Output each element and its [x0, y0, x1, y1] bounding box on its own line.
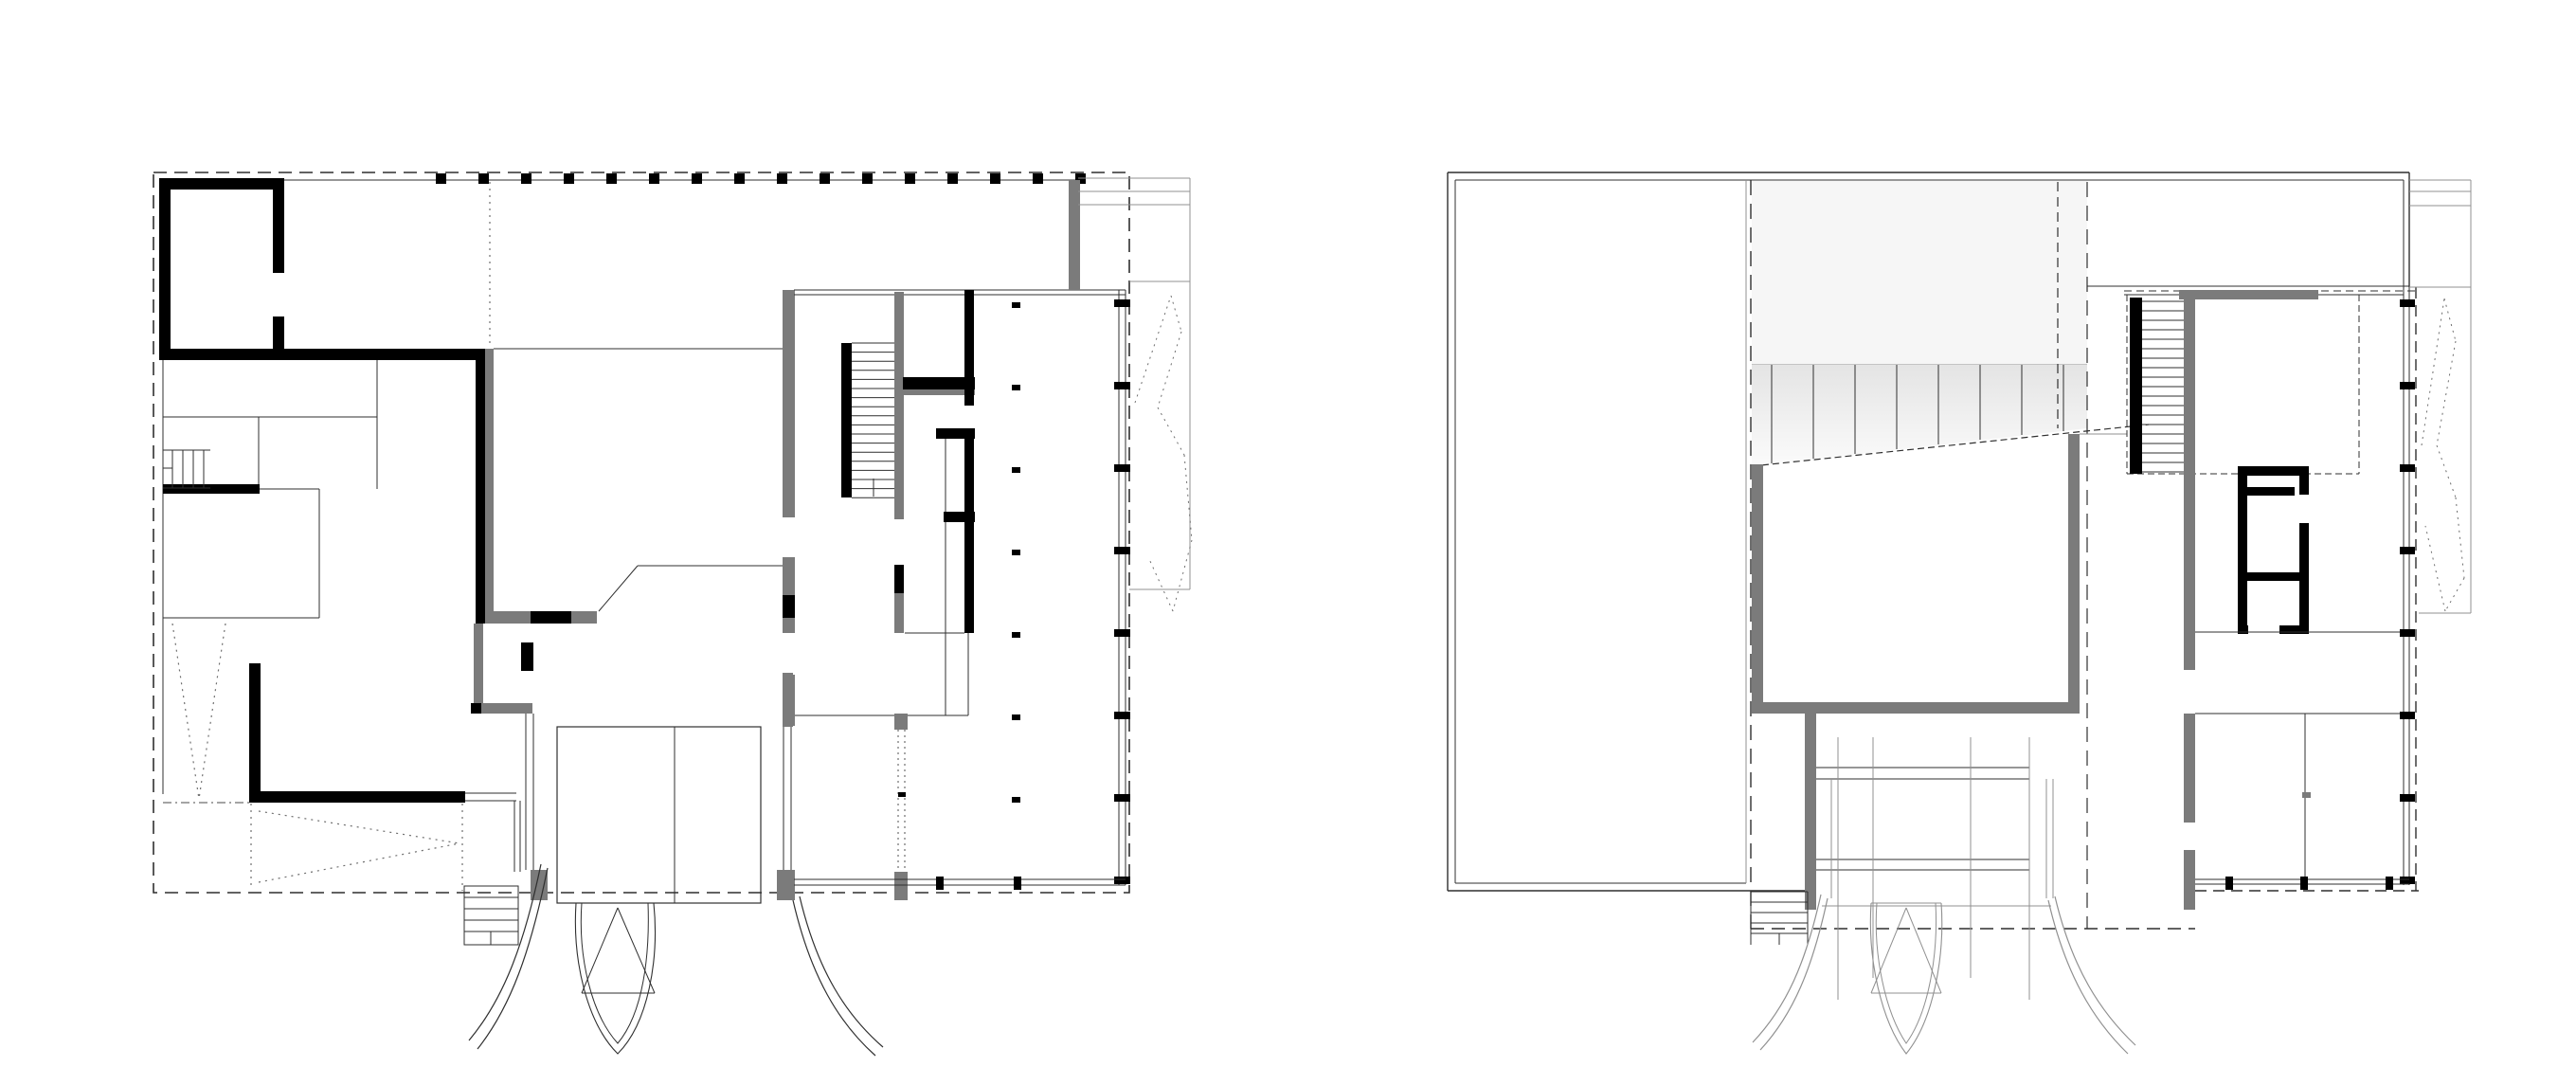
- wall-black: [2238, 625, 2248, 634]
- wall-gray: [485, 611, 531, 624]
- wall-black: [249, 663, 261, 802]
- wall-black: [2238, 466, 2309, 476]
- wall-gray: [1763, 702, 2080, 714]
- mullion-tick: [564, 173, 574, 184]
- dock-curve: [469, 864, 541, 1040]
- wall-black: [476, 349, 485, 624]
- wall-black: [159, 178, 284, 190]
- wall-black: [163, 484, 260, 494]
- mullion-tick: [2400, 299, 2415, 307]
- wall-black: [964, 438, 974, 633]
- wall-black: [2238, 487, 2295, 496]
- tree-outline: [1149, 559, 1173, 611]
- mullion-tick: [478, 173, 489, 184]
- mullion-tick: [2225, 877, 2233, 890]
- mullion-tick: [1014, 877, 1021, 890]
- mullion-tick: [862, 173, 873, 184]
- floor-plan-drawing: [0, 0, 2576, 1067]
- wall-gray: [2184, 714, 2195, 823]
- mullion-tick: [2400, 877, 2415, 884]
- dock-curve: [1753, 895, 1821, 1042]
- void-zone: [1752, 181, 2087, 365]
- wall-gray: [903, 389, 975, 395]
- wall-gray: [1752, 464, 1763, 714]
- mullion-tick: [2400, 382, 2415, 389]
- column-dot: [2302, 792, 2311, 798]
- dock-curve: [2048, 900, 2128, 1054]
- wall-black: [159, 349, 476, 360]
- wall-black: [2279, 625, 2309, 634]
- mullion-tick: [990, 173, 1000, 184]
- wall-gray: [2179, 290, 2318, 299]
- mullion-tick: [905, 173, 915, 184]
- wall-gray: [2184, 295, 2195, 670]
- wall-gray: [894, 714, 908, 730]
- mullion-tick: [1114, 299, 1130, 307]
- mullion-tick: [1114, 794, 1130, 802]
- tree-outline: [1158, 407, 1184, 455]
- plan-upper-level: [1448, 172, 2471, 1054]
- wall-black: [531, 611, 571, 624]
- plan-lower-level: [153, 172, 1192, 1056]
- mullion-tick: [2400, 794, 2415, 802]
- tree-outline: [259, 843, 459, 882]
- tree-outline: [199, 624, 225, 799]
- counter-diagonal: [599, 566, 638, 611]
- tree-outline: [2425, 526, 2445, 611]
- wall-gray: [894, 872, 908, 900]
- wall-gray: [783, 675, 795, 726]
- wall-black: [2238, 572, 2309, 581]
- mullion-tick: [1114, 547, 1130, 554]
- column-dot: [1012, 385, 1020, 390]
- mullion-tick: [1114, 464, 1130, 472]
- tree-outline: [2437, 445, 2456, 497]
- boat-deck: [618, 908, 655, 993]
- tree-outline: [1158, 332, 1181, 407]
- wall-black: [273, 178, 284, 273]
- mullion-tick: [692, 173, 702, 184]
- column-dot: [1012, 467, 1020, 473]
- wall-gray: [777, 870, 795, 900]
- wall-gray: [474, 624, 483, 703]
- dock-curve: [800, 896, 883, 1047]
- wall-gray: [783, 557, 795, 595]
- wall-gray: [571, 611, 597, 624]
- wall-gray: [1069, 180, 1080, 290]
- tree-outline: [2456, 497, 2464, 578]
- mullion-tick: [606, 173, 617, 184]
- stair-stringer: [2130, 298, 2142, 474]
- mullion-tick: [734, 173, 745, 184]
- mullion-tick: [436, 173, 446, 184]
- mullion-tick: [820, 173, 830, 184]
- wall-black: [903, 377, 975, 389]
- wall-black: [2299, 466, 2309, 495]
- mullion-tick: [2400, 712, 2415, 719]
- tree-outline: [1184, 455, 1192, 540]
- column-dot: [1012, 550, 1020, 555]
- column-dot: [1012, 797, 1020, 803]
- site-boundary-dashed: [153, 172, 1129, 893]
- wall-black: [249, 791, 465, 803]
- mullion-tick: [2400, 629, 2415, 637]
- boat-garage: [557, 727, 761, 903]
- wall-gray: [783, 290, 795, 517]
- mullion-tick: [521, 173, 531, 184]
- tree-outline: [172, 624, 199, 799]
- wall-black: [783, 595, 795, 618]
- mullion-tick: [1033, 173, 1043, 184]
- tree-outline: [2422, 298, 2444, 445]
- ramp-surface: [1752, 365, 2087, 466]
- mullion-tick: [1114, 382, 1130, 389]
- wall-gray: [481, 703, 532, 714]
- column-dot: [1012, 302, 1020, 308]
- mullion-tick: [1114, 712, 1130, 719]
- mullion-tick: [2386, 877, 2393, 890]
- tree-outline: [2445, 578, 2464, 611]
- wall-black: [471, 703, 481, 714]
- mullion-tick: [777, 173, 787, 184]
- wall-gray: [894, 593, 904, 633]
- wall-black: [936, 428, 975, 439]
- wall-gray: [783, 618, 795, 633]
- dock-curve: [793, 900, 875, 1056]
- column-dot: [1012, 632, 1020, 638]
- door-jamb: [521, 642, 533, 671]
- wall-black: [894, 565, 904, 593]
- wall-gray: [2184, 850, 2195, 910]
- tree-outline: [259, 811, 459, 843]
- tree-outline: [1173, 540, 1192, 611]
- dock-curve: [1760, 898, 1828, 1050]
- tree-outline: [2437, 341, 2456, 445]
- dock-curve: [2055, 896, 2135, 1045]
- boat-deck: [582, 908, 618, 993]
- column-dot: [898, 792, 906, 797]
- mullion-tick: [2300, 877, 2308, 890]
- mullion-tick: [1114, 877, 1130, 884]
- wall-gray: [485, 349, 494, 611]
- mullion-tick: [649, 173, 659, 184]
- tree-outline: [1171, 296, 1181, 332]
- stair-stringer: [841, 343, 852, 497]
- tree-outline: [1135, 296, 1171, 403]
- wall-gray: [2068, 434, 2080, 714]
- wall-black: [159, 178, 171, 360]
- boat-hull: [1876, 903, 1936, 1043]
- column-dot: [1012, 714, 1020, 720]
- wall-gray: [894, 292, 904, 519]
- mullion-tick: [947, 173, 958, 184]
- mullion-tick: [2400, 464, 2415, 472]
- tree-outline: [2444, 298, 2456, 341]
- wall-black: [964, 290, 974, 406]
- mullion-tick: [2400, 547, 2415, 554]
- mullion-tick: [936, 877, 944, 890]
- drawing-sheet: [0, 0, 2576, 1067]
- mullion-tick: [1114, 629, 1130, 637]
- wall-gray: [1805, 714, 1816, 910]
